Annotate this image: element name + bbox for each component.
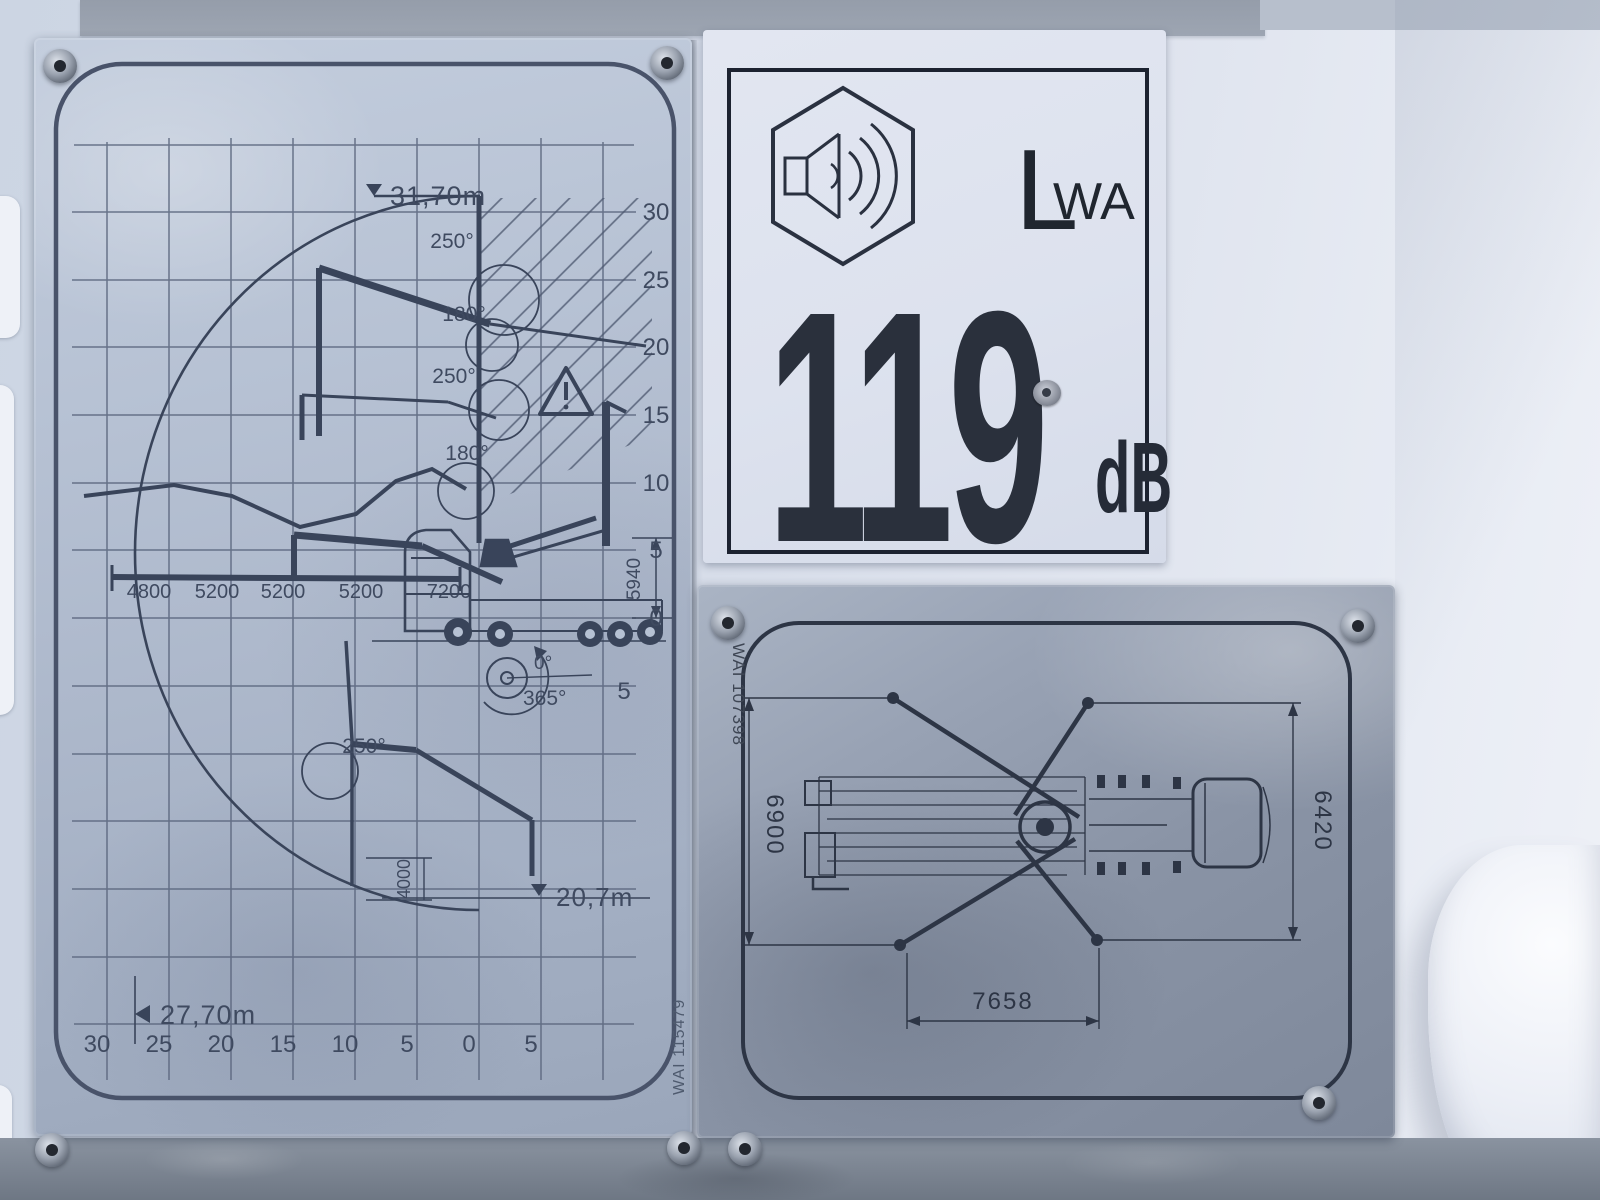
speaker-icon xyxy=(785,124,896,228)
dimension-left-label: 6900 xyxy=(761,794,788,855)
angle-label-5: 250° xyxy=(342,735,385,758)
lwa-label-sub: WA xyxy=(1053,176,1135,228)
cab-top-view xyxy=(1193,779,1261,867)
y-tick-15: 15 xyxy=(643,402,670,429)
x-tick-5b: 5 xyxy=(524,1031,537,1058)
machine-top-view xyxy=(805,692,1270,951)
max-height-label: 31,70m xyxy=(390,181,486,211)
working-range-diagram: 31,70m 20,7m 27,70m xyxy=(34,38,692,1136)
down-triangle-icon xyxy=(366,184,382,196)
y-tick-25: 25 xyxy=(643,267,670,294)
y-tick-10: 10 xyxy=(643,470,670,497)
hatched-zone xyxy=(481,198,652,506)
angle-label-1: 250° xyxy=(430,230,473,253)
noise-level-sticker: L WA 119 dB xyxy=(703,30,1166,563)
rotation-to-label: 365° xyxy=(523,687,566,710)
y-tick-below-5: 5 xyxy=(617,678,630,705)
segment-label-2: 5200 xyxy=(195,581,240,603)
angle-label-3: 250° xyxy=(432,365,475,388)
x-tick-15: 15 xyxy=(270,1031,297,1058)
photo-of-machine-placards: 31,70m 20,7m 27,70m xyxy=(0,0,1600,1200)
angle-label-2: 180° xyxy=(442,303,485,326)
dimension-right-label: 6420 xyxy=(1309,790,1336,851)
truck-wheels xyxy=(444,618,663,647)
down-triangle-icon xyxy=(531,884,547,896)
angle-label-4: 180° xyxy=(445,442,488,465)
outrigger-legs xyxy=(893,698,1097,945)
range-placard-serial: WAI 115479 xyxy=(671,999,688,1095)
fold-dimension-label: 4000 xyxy=(394,859,414,899)
segment-label-3: 5200 xyxy=(261,581,306,603)
segment-label-5: 7200 xyxy=(427,581,472,603)
y-tick-5: 5 xyxy=(649,537,662,564)
segment-label-4: 5200 xyxy=(339,581,384,603)
screw xyxy=(728,1132,762,1166)
screw xyxy=(667,1131,701,1165)
segment-label-1: 4800 xyxy=(127,581,172,603)
x-tick-5: 5 xyxy=(400,1031,413,1058)
screw xyxy=(43,49,77,83)
screw xyxy=(1341,609,1375,643)
reach-axis: 30 25 20 15 10 5 0 5 xyxy=(84,1031,538,1058)
working-range-placard: 31,70m 20,7m 27,70m xyxy=(34,38,692,1136)
dimension-bottom-label: 7658 xyxy=(972,988,1033,1015)
x-tick-20: 20 xyxy=(208,1031,235,1058)
max-depth-annotation: 20,7m xyxy=(382,882,650,912)
screw xyxy=(1302,1086,1336,1120)
max-reach-label: 27,70m xyxy=(160,1000,256,1030)
screw xyxy=(650,46,684,80)
mast-height-label: 5940 xyxy=(624,558,645,600)
outrigger-footprint-placard: 6900 6420 7658 WAI 107398 xyxy=(697,585,1395,1138)
rivet xyxy=(1033,380,1061,406)
noise-level-unit: dB xyxy=(1095,428,1172,528)
x-tick-0: 0 xyxy=(462,1031,475,1058)
x-tick-30: 30 xyxy=(84,1031,111,1058)
noise-level-value: 119 xyxy=(767,262,1043,592)
wall-shadow xyxy=(1395,0,1600,870)
max-height-annotation: 31,70m xyxy=(366,181,486,211)
boom-position-3 xyxy=(84,463,494,527)
x-tick-25: 25 xyxy=(146,1031,173,1058)
screw xyxy=(35,1133,69,1167)
outrigger-placard-serial: WAI 107398 xyxy=(729,643,748,746)
max-depth-label: 20,7m xyxy=(556,882,633,912)
y-tick-0: 0 xyxy=(649,605,662,632)
wall-sticker-remnant xyxy=(0,385,14,715)
left-triangle-icon xyxy=(135,1005,150,1023)
y-tick-30: 30 xyxy=(643,199,670,226)
concrete-ledge xyxy=(0,1138,1600,1200)
segment-length-labels: 4800 5200 5200 5200 7200 xyxy=(127,581,472,603)
wall-sticker-remnant xyxy=(0,196,20,338)
outrigger-diagram: 6900 6420 7658 WAI 107398 xyxy=(697,585,1395,1138)
y-tick-20: 20 xyxy=(643,334,670,361)
rotation-from-label: 0° xyxy=(534,653,552,674)
x-tick-10: 10 xyxy=(332,1031,359,1058)
screw xyxy=(711,606,745,640)
